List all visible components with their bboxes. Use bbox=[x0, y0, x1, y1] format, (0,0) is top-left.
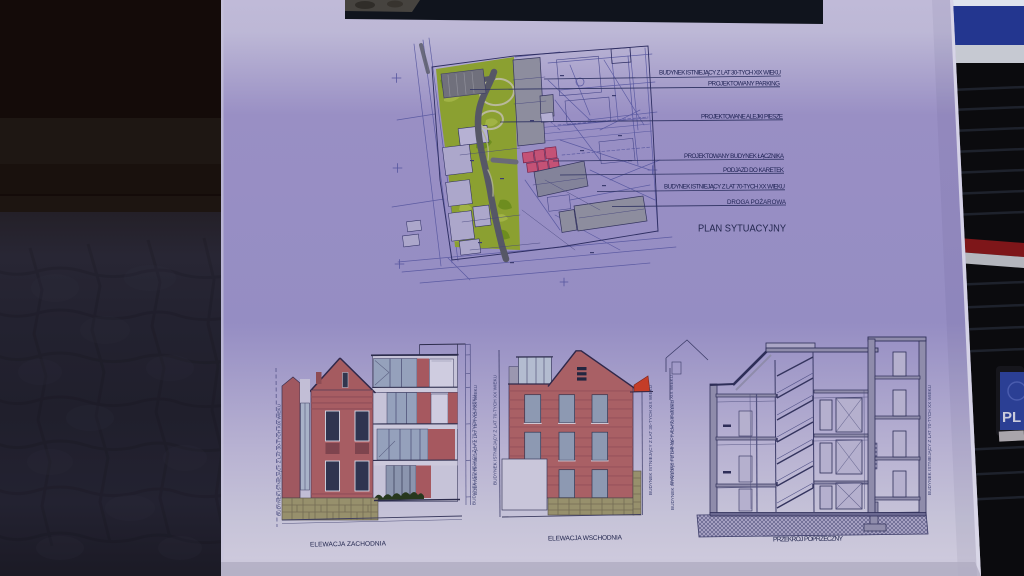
svg-text:DROGA POŻAROWA: DROGA POŻAROWA bbox=[727, 199, 787, 206]
svg-text:PL: PL bbox=[1002, 409, 1021, 426]
svg-text:ELEWACJA ZACHODNIA: ELEWACJA ZACHODNIA bbox=[310, 540, 387, 548]
svg-text:ELEWACJA WSCHODNIA: ELEWACJA WSCHODNIA bbox=[548, 534, 623, 542]
svg-text:BUDYNEK ISTNIEJĄCY Z LAT 30-TY: BUDYNEK ISTNIEJĄCY Z LAT 30-TYCH XIX WIE… bbox=[670, 400, 675, 510]
svg-text:BUDYNEK ISTNIEJĄCY Z LAT 70-TY: BUDYNEK ISTNIEJĄCY Z LAT 70-TYCH XX WIEK… bbox=[473, 385, 478, 495]
svg-text:BUDYNEK ISTNIEJĄCY Z LAT 30-TY: BUDYNEK ISTNIEJĄCY Z LAT 30-TYCH XIX WIE… bbox=[648, 385, 653, 495]
svg-text:BUDYNEK ISTNIEJĄCY Z LAT 30-TY: BUDYNEK ISTNIEJĄCY Z LAT 30-TYCH XIX WIE… bbox=[277, 404, 282, 516]
svg-text:BUDYNEK ISTNIEJĄCY Z LAT 30-TY: BUDYNEK ISTNIEJĄCY Z LAT 30-TYCH XIX WIE… bbox=[659, 70, 781, 77]
svg-text:BUDYNEK ISTNIEJĄCY Z LAT 70-TY: BUDYNEK ISTNIEJĄCY Z LAT 70-TYCH XX WIEK… bbox=[927, 385, 932, 495]
svg-text:PROJEKTOWANE ALEJKI PIESZE: PROJEKTOWANE ALEJKI PIESZE bbox=[701, 114, 783, 121]
svg-text:PROJEKTOWANY PARKING: PROJEKTOWANY PARKING bbox=[708, 81, 780, 88]
svg-text:PLAN SYTUACYJNY: PLAN SYTUACYJNY bbox=[698, 224, 786, 235]
svg-text:PODJAZD DO KARETEK: PODJAZD DO KARETEK bbox=[723, 167, 785, 174]
svg-text:BUDYNEK ISTNIEJĄCY Z LAT 70-TY: BUDYNEK ISTNIEJĄCY Z LAT 70-TYCH XX WIEK… bbox=[664, 184, 785, 191]
svg-text:BUDYNEK ISTNIEJĄCY Z LAT 70-TY: BUDYNEK ISTNIEJĄCY Z LAT 70-TYCH XX WIEK… bbox=[493, 375, 498, 485]
svg-text:PROJEKTOWANY BUDYNEK ŁĄCZNIKA: PROJEKTOWANY BUDYNEK ŁĄCZNIKA bbox=[684, 153, 785, 160]
